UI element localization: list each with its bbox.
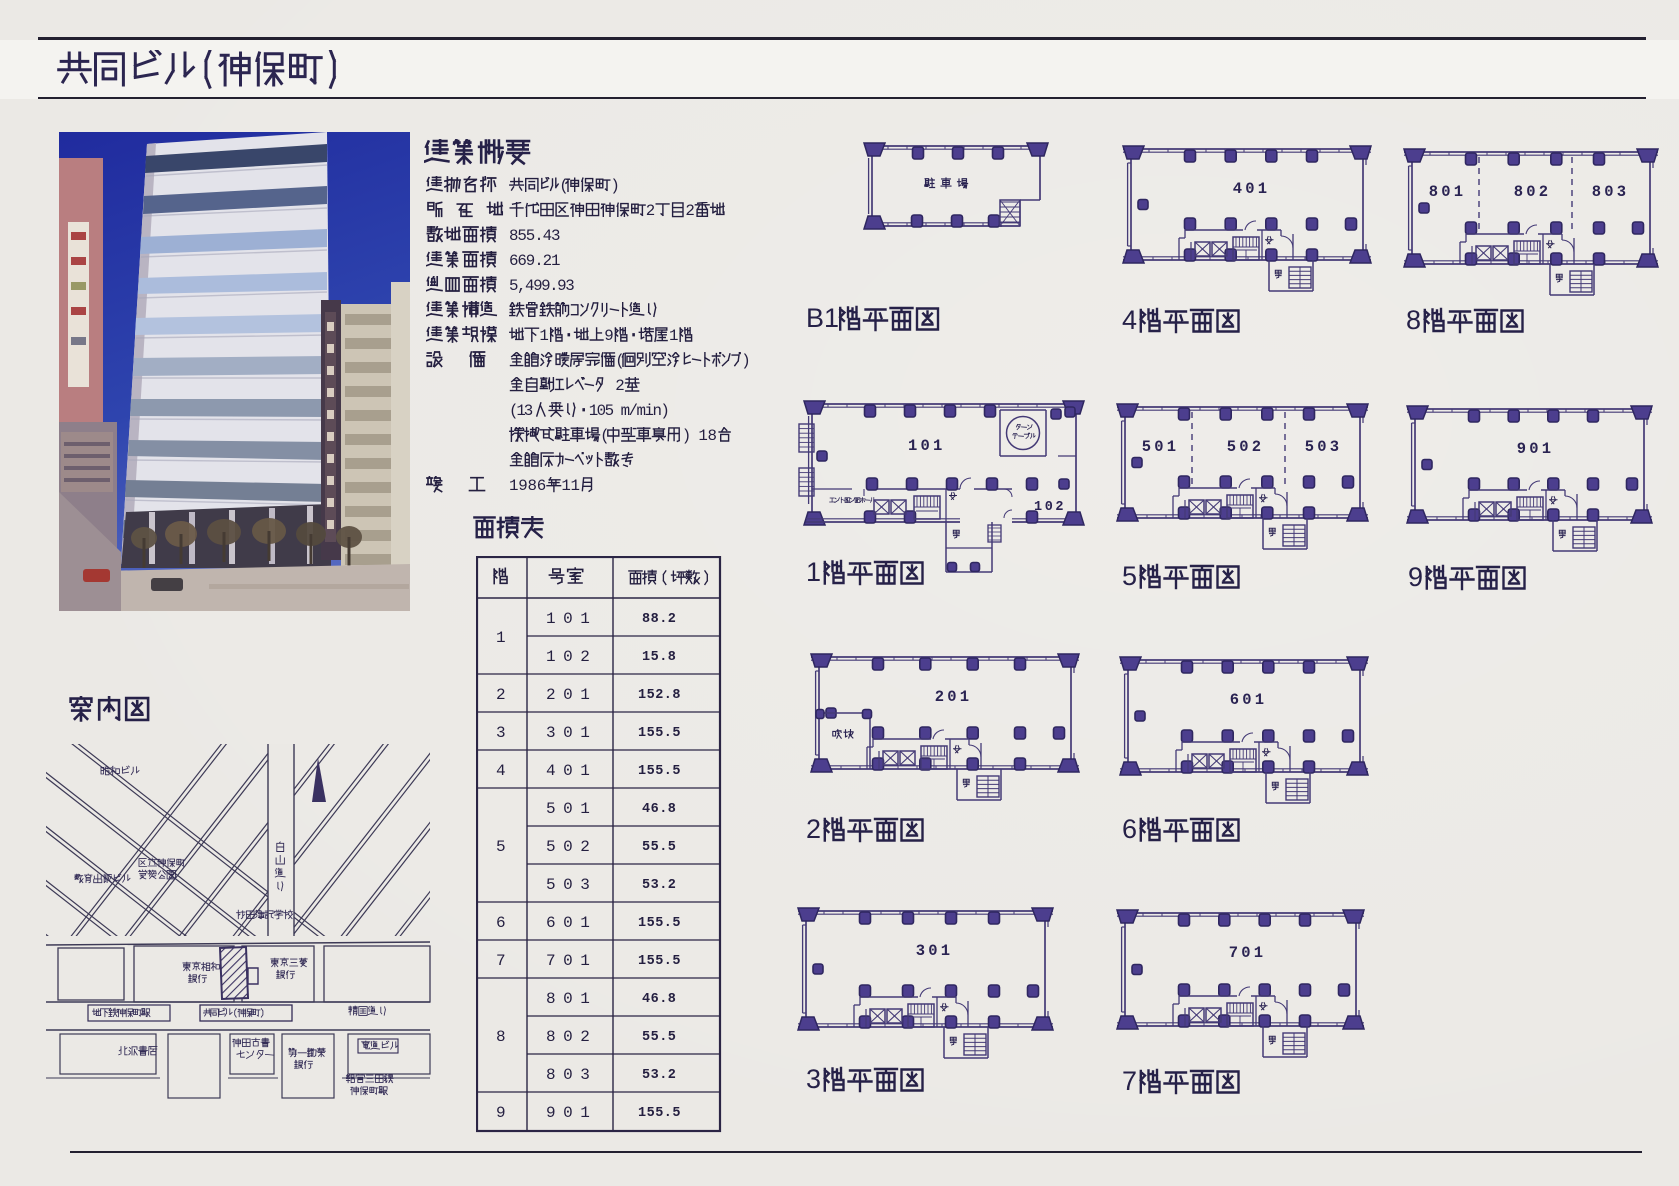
svg-text:901: 901 bbox=[546, 1104, 597, 1122]
svg-text:2: 2 bbox=[646, 202, 655, 220]
svg-text:152.8: 152.8 bbox=[638, 688, 681, 703]
svg-text:53.2: 53.2 bbox=[642, 878, 676, 893]
svg-text:803: 803 bbox=[546, 1066, 597, 1084]
svg-text:155.5: 155.5 bbox=[638, 726, 681, 741]
svg-text:801: 801 bbox=[1429, 183, 1467, 201]
svg-text:101: 101 bbox=[546, 610, 597, 628]
svg-text:1: 1 bbox=[496, 629, 506, 647]
svg-text:(: ( bbox=[559, 177, 568, 195]
svg-text:401: 401 bbox=[546, 762, 597, 780]
svg-text:2: 2 bbox=[615, 377, 624, 395]
svg-text:802: 802 bbox=[1514, 183, 1552, 201]
svg-text:502: 502 bbox=[1227, 438, 1265, 456]
svg-text:701: 701 bbox=[1229, 944, 1267, 962]
svg-text:3: 3 bbox=[496, 724, 506, 742]
svg-text:601: 601 bbox=[546, 914, 597, 932]
svg-text:201: 201 bbox=[935, 688, 973, 706]
svg-text:46.8: 46.8 bbox=[642, 802, 676, 817]
svg-text:1: 1 bbox=[539, 327, 548, 345]
svg-text:1: 1 bbox=[806, 559, 821, 587]
svg-text:5,499.93: 5,499.93 bbox=[509, 277, 575, 295]
svg-text:901: 901 bbox=[1517, 440, 1555, 458]
svg-text:): ) bbox=[682, 427, 691, 445]
svg-text:102: 102 bbox=[1034, 500, 1066, 515]
svg-text:155.5: 155.5 bbox=[638, 1106, 681, 1121]
svg-text:88.2: 88.2 bbox=[642, 612, 676, 627]
svg-text:55.5: 55.5 bbox=[642, 840, 676, 855]
svg-text:503: 503 bbox=[1305, 438, 1343, 456]
svg-text:803: 803 bbox=[1592, 183, 1630, 201]
svg-text:): ) bbox=[610, 177, 619, 195]
svg-text:15.8: 15.8 bbox=[642, 650, 676, 665]
svg-text:502: 502 bbox=[546, 838, 597, 856]
svg-text:5: 5 bbox=[496, 838, 506, 856]
svg-text:105 m/min): 105 m/min) bbox=[589, 402, 670, 420]
svg-text:(13: (13 bbox=[509, 402, 533, 420]
svg-text:801: 801 bbox=[546, 990, 597, 1008]
svg-text:601: 601 bbox=[1230, 691, 1268, 709]
svg-text:855.43: 855.43 bbox=[509, 227, 561, 245]
svg-text:2: 2 bbox=[685, 202, 694, 220]
svg-text:701: 701 bbox=[546, 952, 597, 970]
svg-text:53.2: 53.2 bbox=[642, 1068, 676, 1083]
svg-text:2: 2 bbox=[806, 816, 821, 844]
svg-text:5: 5 bbox=[1122, 563, 1137, 591]
svg-text:669.21: 669.21 bbox=[509, 252, 561, 270]
svg-text:55.5: 55.5 bbox=[642, 1030, 676, 1045]
svg-text:9: 9 bbox=[496, 1104, 506, 1122]
svg-text:7: 7 bbox=[1122, 1068, 1137, 1096]
svg-text:3: 3 bbox=[806, 1066, 821, 1094]
svg-text:8: 8 bbox=[1406, 307, 1421, 335]
svg-text:155.5: 155.5 bbox=[638, 916, 681, 931]
svg-text:102: 102 bbox=[546, 648, 597, 666]
svg-text:201: 201 bbox=[546, 686, 597, 704]
svg-text:18: 18 bbox=[698, 427, 717, 445]
svg-text:): ) bbox=[741, 352, 750, 370]
svg-text:(: ( bbox=[600, 427, 609, 445]
svg-text:501: 501 bbox=[546, 800, 597, 818]
svg-text:501: 501 bbox=[1142, 438, 1180, 456]
svg-text:4: 4 bbox=[496, 762, 506, 780]
svg-text:155.5: 155.5 bbox=[638, 764, 681, 779]
svg-text:802: 802 bbox=[546, 1028, 597, 1046]
svg-text:401: 401 bbox=[1233, 180, 1271, 198]
svg-text:11: 11 bbox=[561, 477, 580, 495]
svg-text:B1: B1 bbox=[806, 305, 839, 333]
svg-text:503: 503 bbox=[546, 876, 597, 894]
svg-text:1986: 1986 bbox=[509, 477, 546, 495]
svg-text:155.5: 155.5 bbox=[638, 954, 681, 969]
svg-text:9: 9 bbox=[1408, 564, 1423, 592]
svg-text:7: 7 bbox=[496, 952, 506, 970]
svg-text:46.8: 46.8 bbox=[642, 992, 676, 1007]
svg-text:301: 301 bbox=[916, 942, 954, 960]
svg-text:101: 101 bbox=[908, 437, 946, 455]
svg-text:(: ( bbox=[615, 352, 624, 370]
svg-text:301: 301 bbox=[546, 724, 597, 742]
svg-text:1: 1 bbox=[669, 327, 678, 345]
svg-text:6: 6 bbox=[496, 914, 506, 932]
svg-text:6: 6 bbox=[1122, 816, 1137, 844]
svg-text:8: 8 bbox=[496, 1028, 506, 1046]
svg-text:4: 4 bbox=[1122, 307, 1137, 335]
svg-text:2: 2 bbox=[496, 686, 506, 704]
svg-text:9: 9 bbox=[604, 327, 613, 345]
